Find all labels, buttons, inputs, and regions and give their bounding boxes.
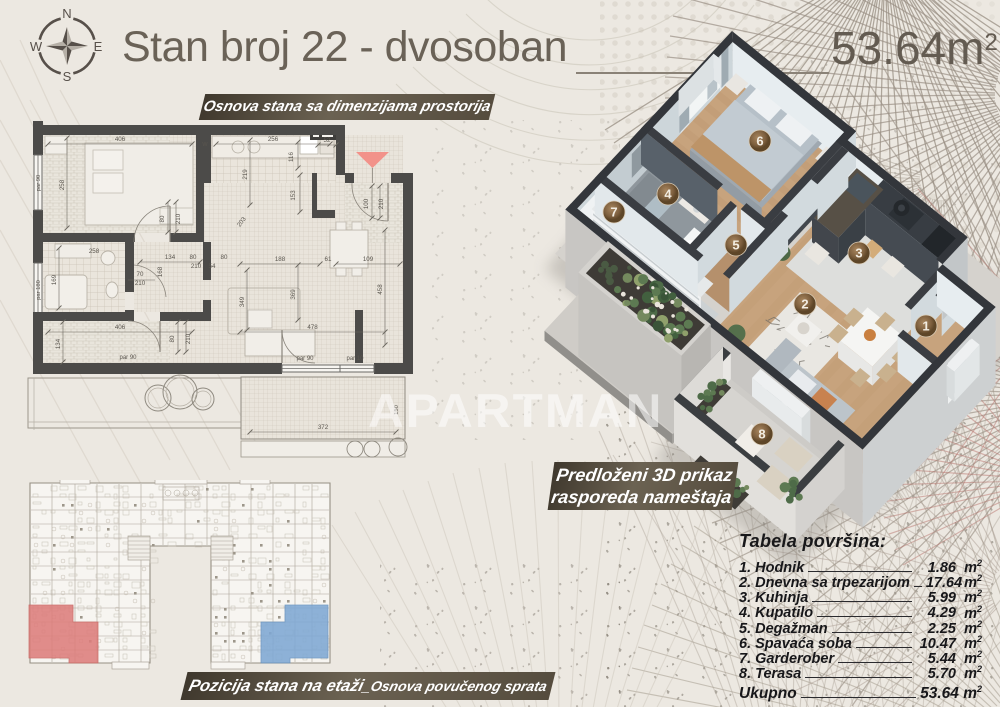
svg-text:3: 3 bbox=[855, 246, 862, 261]
svg-text:1: 1 bbox=[922, 319, 929, 334]
svg-text:7: 7 bbox=[610, 205, 617, 220]
svg-text:2: 2 bbox=[801, 297, 808, 312]
svg-text:6: 6 bbox=[756, 134, 763, 149]
svg-text:4: 4 bbox=[664, 187, 672, 202]
svg-text:8: 8 bbox=[758, 427, 765, 442]
svg-text:5: 5 bbox=[732, 238, 739, 253]
